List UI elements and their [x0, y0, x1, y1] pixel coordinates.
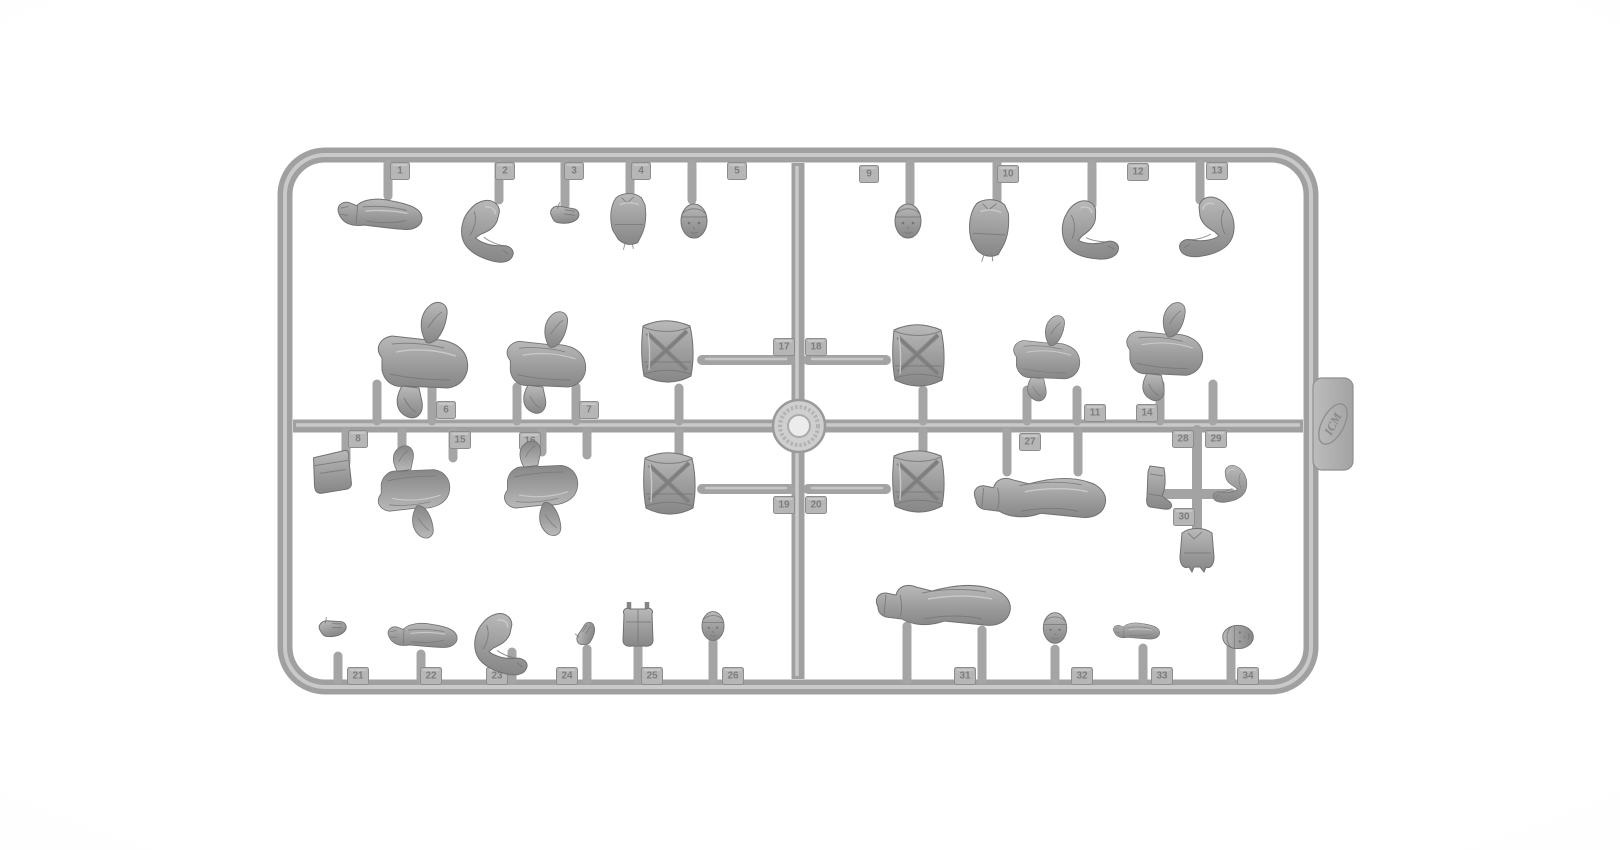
- part-tag-22: 22: [421, 668, 442, 685]
- part-21-hand: [317, 613, 348, 640]
- svg-text:14: 14: [1141, 408, 1153, 419]
- svg-text:29: 29: [1210, 434, 1222, 445]
- part-24-hand: [573, 619, 597, 647]
- part-tag-18: 18: [806, 339, 827, 356]
- part-tag-28: 28: [1173, 431, 1194, 448]
- part-tag-25: 25: [642, 668, 663, 685]
- part-28-boot: [1147, 466, 1172, 509]
- part-tag-9: 9: [860, 166, 879, 183]
- sprue-scene: 1 2 3 4 5 9 10 12 13 6 7 11 14 8 15 16 1…: [0, 0, 1620, 850]
- part-tag-26: 26: [723, 668, 744, 685]
- center-hub: [773, 400, 825, 452]
- part-27-legs: [974, 478, 1105, 517]
- svg-text:13: 13: [1211, 166, 1223, 177]
- svg-text:21: 21: [352, 671, 364, 682]
- part-12-arm: [1060, 198, 1119, 262]
- part-5-head: [681, 204, 707, 238]
- svg-text:7: 7: [586, 405, 592, 416]
- svg-text:33: 33: [1156, 671, 1168, 682]
- part-14-legs: [1127, 303, 1203, 401]
- part-30-jacket: [1180, 529, 1214, 573]
- part-tag-12: 12: [1128, 164, 1149, 181]
- svg-text:25: 25: [646, 671, 658, 682]
- svg-text:1: 1: [397, 166, 403, 177]
- svg-text:24: 24: [561, 671, 573, 682]
- part-tag-11: 11: [1085, 405, 1106, 422]
- part-4-torso: [611, 194, 646, 250]
- part-18-drum-torso: [893, 325, 945, 386]
- svg-text:10: 10: [1002, 169, 1014, 180]
- part-tag-7: 7: [580, 402, 599, 419]
- part-2-arm: [458, 197, 520, 264]
- svg-text:9: 9: [866, 169, 872, 180]
- part-34-head: [1223, 625, 1254, 648]
- svg-text:5: 5: [734, 166, 740, 177]
- part-32-head: [1043, 613, 1066, 644]
- part-6-legs: [378, 302, 467, 417]
- part-tag-15: 15: [450, 432, 471, 449]
- part-15-legs: [378, 446, 449, 538]
- part-tag-33: 33: [1152, 668, 1173, 685]
- svg-text:30: 30: [1178, 512, 1190, 523]
- part-tag-8: 8: [349, 431, 368, 448]
- svg-text:6: 6: [443, 405, 449, 416]
- part-tag-30: 30: [1174, 509, 1195, 526]
- part-tag-31: 31: [955, 668, 976, 685]
- svg-text:32: 32: [1076, 671, 1088, 682]
- part-tag-14: 14: [1137, 405, 1158, 422]
- part-20-drum-torso: [893, 451, 945, 512]
- part-tag-17: 17: [774, 339, 795, 356]
- svg-text:4: 4: [638, 166, 644, 177]
- svg-text:18: 18: [810, 342, 822, 353]
- part-tag-1: 1: [391, 163, 410, 180]
- svg-text:2: 2: [502, 166, 508, 177]
- svg-text:28: 28: [1177, 434, 1189, 445]
- part-tag-5: 5: [728, 163, 747, 180]
- part-tag-34: 34: [1238, 668, 1259, 685]
- svg-text:26: 26: [727, 671, 739, 682]
- svg-text:27: 27: [1024, 437, 1036, 448]
- svg-text:19: 19: [778, 500, 790, 511]
- part-8-pouch: [312, 450, 352, 494]
- part-29-arm: [1213, 465, 1247, 502]
- svg-text:34: 34: [1242, 671, 1254, 682]
- part-tag-13: 13: [1207, 163, 1228, 180]
- part-17-drum-torso: [642, 321, 694, 382]
- brand-tab: ICM: [1313, 378, 1353, 470]
- part-1-arm: [337, 198, 422, 230]
- part-13-arm: [1180, 197, 1234, 257]
- svg-text:17: 17: [778, 342, 790, 353]
- part-31-legs: [876, 585, 1010, 625]
- part-tag-29: 29: [1206, 431, 1227, 448]
- part-tag-21: 21: [348, 668, 369, 685]
- svg-text:22: 22: [425, 671, 437, 682]
- part-tag-19: 19: [774, 497, 795, 514]
- part-33-arm: [1113, 623, 1159, 639]
- part-23-arm: [472, 611, 532, 676]
- part-25-vest: [623, 602, 653, 646]
- part-22-arm: [388, 623, 457, 647]
- part-tag-24: 24: [557, 668, 578, 685]
- svg-text:31: 31: [959, 671, 971, 682]
- part-10-torso: [968, 199, 1010, 263]
- part-19-drum-torso: [644, 453, 696, 514]
- part-26-head: [702, 612, 724, 641]
- svg-text:11: 11: [1090, 408, 1101, 419]
- part-tag-4: 4: [632, 163, 651, 180]
- part-tag-2: 2: [496, 163, 515, 180]
- svg-text:15: 15: [454, 435, 466, 446]
- part-tag-32: 32: [1072, 668, 1093, 685]
- svg-text:3: 3: [571, 166, 577, 177]
- part-9-head: [895, 204, 921, 238]
- part-tag-27: 27: [1020, 434, 1041, 451]
- part-tag-20: 20: [806, 497, 827, 514]
- sprue-photo: 1 2 3 4 5 9 10 12 13 6 7 11 14 8 15 16 1…: [0, 0, 1620, 850]
- svg-text:8: 8: [355, 434, 361, 445]
- part-tag-6: 6: [437, 402, 456, 419]
- part-tag-10: 10: [998, 166, 1019, 183]
- svg-text:12: 12: [1132, 167, 1144, 178]
- svg-text:20: 20: [810, 500, 822, 511]
- part-tag-3: 3: [565, 163, 584, 180]
